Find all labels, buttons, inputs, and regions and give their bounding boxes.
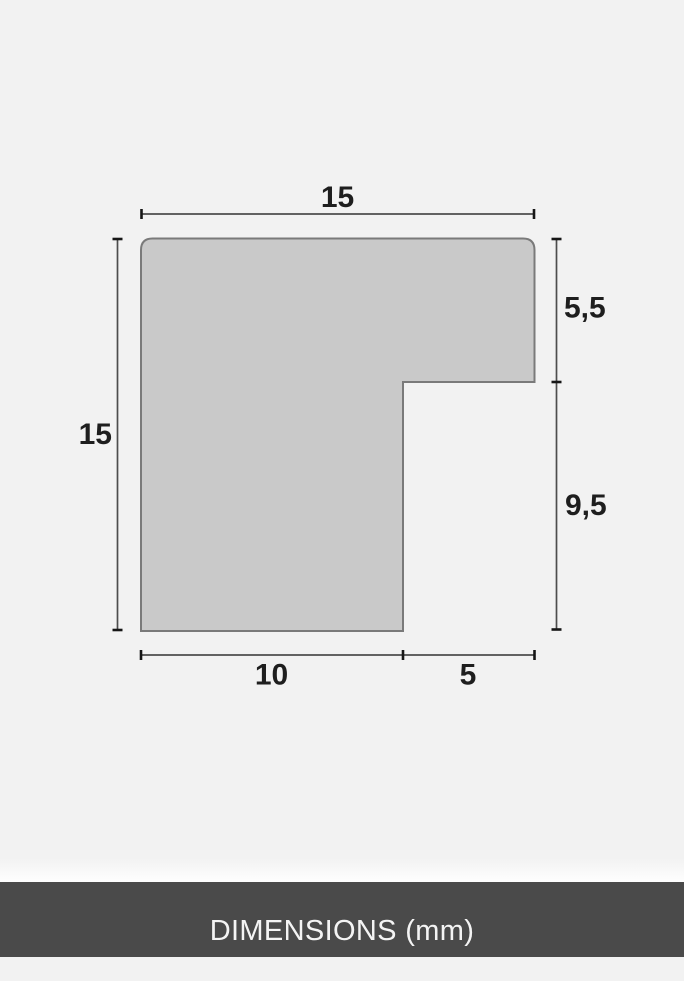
svg-text:5,5: 5,5: [564, 292, 606, 325]
svg-text:10: 10: [255, 659, 288, 692]
svg-text:15: 15: [79, 418, 112, 451]
svg-text:15: 15: [321, 181, 354, 214]
svg-text:5: 5: [460, 659, 477, 692]
svg-text:9,5: 9,5: [565, 489, 607, 522]
